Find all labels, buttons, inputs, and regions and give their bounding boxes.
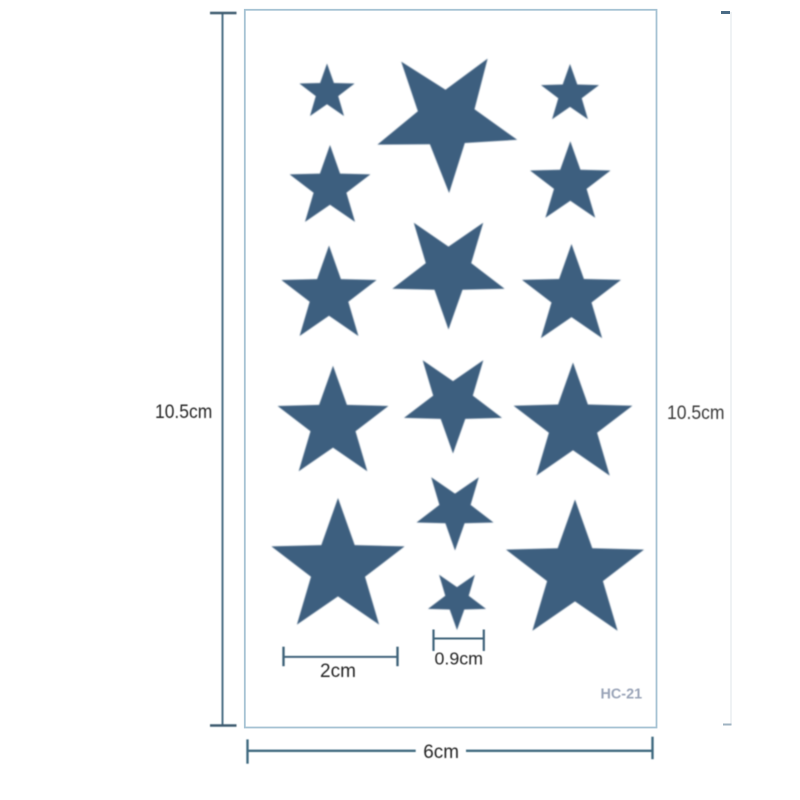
svg-text:0.9cm: 0.9cm bbox=[435, 648, 484, 668]
svg-text:10.5cm: 10.5cm bbox=[155, 400, 212, 422]
svg-text:6cm: 6cm bbox=[423, 742, 459, 763]
svg-text:2cm: 2cm bbox=[320, 661, 356, 682]
svg-text:10.5cm: 10.5cm bbox=[667, 401, 725, 423]
svg-text:HC-21: HC-21 bbox=[601, 686, 643, 702]
